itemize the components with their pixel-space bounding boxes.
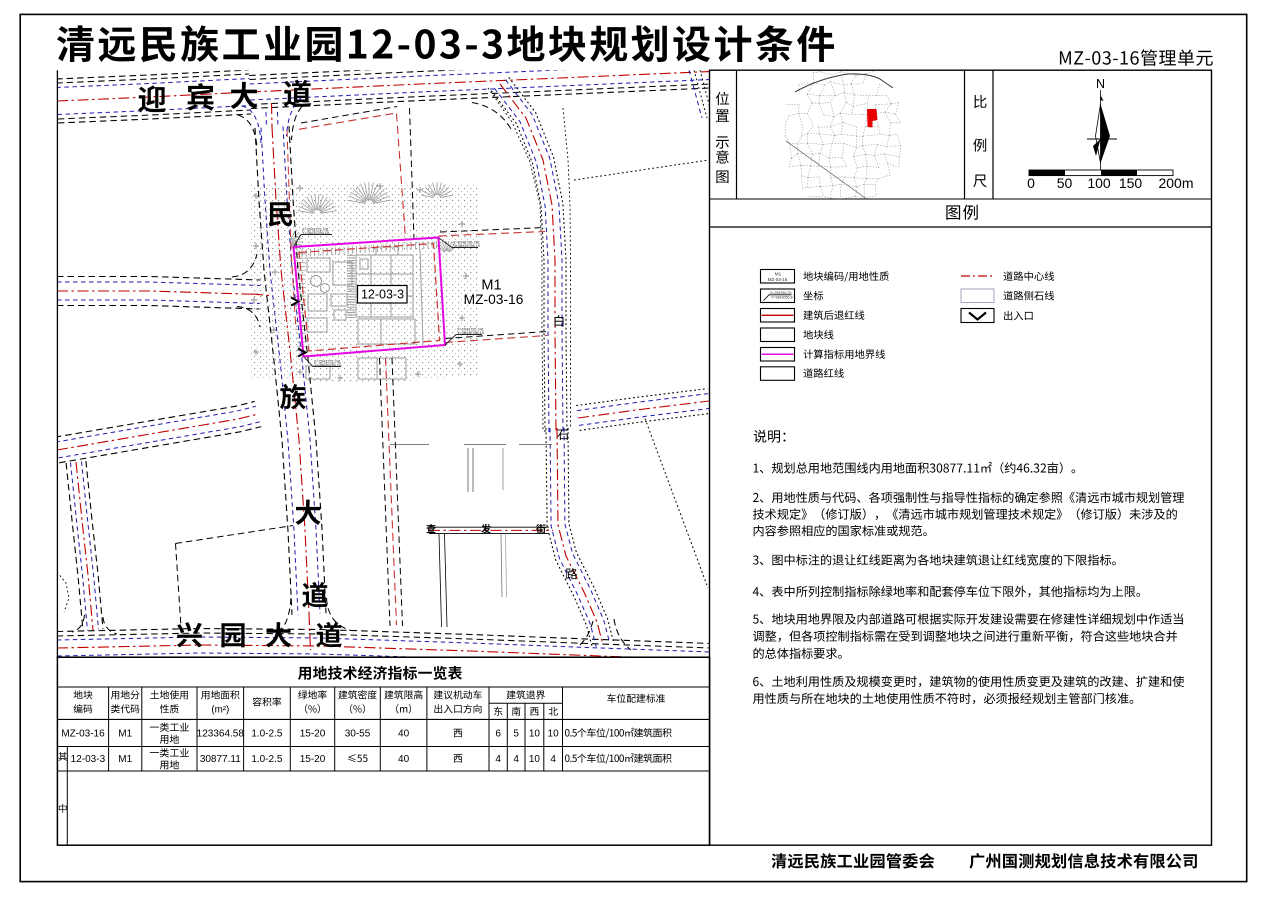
svg-text:50: 50 [1057, 175, 1073, 191]
svg-text:Y=38430786.15: Y=38430786.15 [302, 231, 329, 235]
svg-text:MZ-03-16: MZ-03-16 [61, 729, 105, 740]
svg-text:(m²): (m²) [211, 705, 229, 716]
svg-text:5: 5 [513, 729, 519, 740]
svg-text:10: 10 [548, 729, 560, 740]
svg-text:40: 40 [398, 754, 410, 765]
svg-text:200m: 200m [1158, 175, 1193, 191]
svg-text:MZ-03-16: MZ-03-16 [768, 277, 788, 282]
svg-text:10: 10 [529, 729, 541, 740]
svg-text:15-20: 15-20 [300, 754, 326, 765]
svg-text:30-55: 30-55 [345, 729, 371, 740]
svg-text:4: 4 [513, 754, 519, 765]
svg-text:M1: M1 [775, 272, 782, 277]
svg-text:123364.58: 123364.58 [197, 729, 245, 740]
svg-text:MZ-03-16: MZ-03-16 [464, 292, 524, 307]
svg-text:Y=38430786.15: Y=38430786.15 [453, 244, 480, 248]
svg-text:4: 4 [495, 754, 501, 765]
svg-text:M1: M1 [118, 729, 132, 740]
svg-text:40: 40 [398, 729, 410, 740]
svg-text:0: 0 [1027, 175, 1035, 191]
svg-text:1.0-2.5: 1.0-2.5 [251, 729, 283, 740]
svg-text:12-03-3: 12-03-3 [71, 754, 106, 765]
svg-text:Y=38430786.15: Y=38430786.15 [457, 331, 484, 335]
svg-text:150: 150 [1119, 175, 1143, 191]
svg-text:100: 100 [1087, 175, 1111, 191]
svg-text:M1: M1 [118, 754, 132, 765]
svg-text:Y=38430786.15: Y=38430786.15 [314, 363, 341, 367]
svg-text:6: 6 [495, 729, 501, 740]
svg-text:N: N [1096, 77, 1105, 91]
svg-text:30877.11: 30877.11 [200, 754, 241, 765]
svg-text:1.0-2.5: 1.0-2.5 [251, 754, 283, 765]
svg-text:15-20: 15-20 [300, 729, 326, 740]
svg-text:10: 10 [529, 754, 541, 765]
svg-text:4: 4 [550, 754, 556, 765]
svg-text:12-03-3: 12-03-3 [361, 287, 404, 301]
svg-text:Y=3843055.8: Y=3843055.8 [771, 295, 792, 299]
